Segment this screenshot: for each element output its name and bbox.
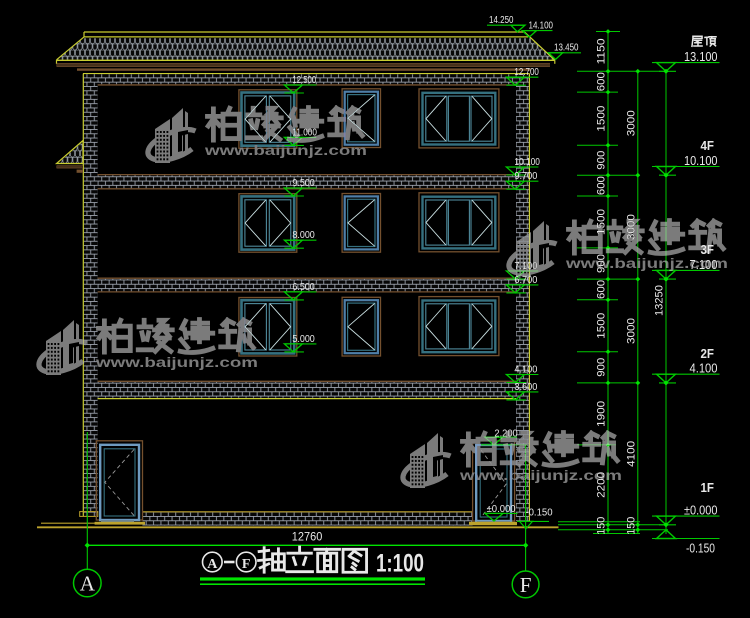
svg-text:9.700: 9.700 bbox=[514, 171, 537, 182]
svg-text:5.000: 5.000 bbox=[292, 334, 315, 345]
svg-text:150: 150 bbox=[596, 517, 608, 535]
svg-text:±0.000: ±0.000 bbox=[684, 503, 718, 518]
svg-text:600: 600 bbox=[596, 280, 608, 299]
svg-text:A: A bbox=[80, 572, 96, 596]
svg-text:10.100: 10.100 bbox=[514, 157, 540, 168]
svg-text:13.100: 13.100 bbox=[684, 49, 718, 64]
svg-text:10.100: 10.100 bbox=[684, 153, 718, 168]
svg-text:1500: 1500 bbox=[596, 313, 608, 339]
svg-text:8.000: 8.000 bbox=[292, 230, 315, 241]
svg-text:-0.150: -0.150 bbox=[686, 542, 715, 556]
svg-text:www.baijunjz.com: www.baijunjz.com bbox=[204, 143, 367, 158]
svg-text:www.baijunjz.com: www.baijunjz.com bbox=[565, 256, 728, 271]
svg-text:1500: 1500 bbox=[596, 106, 608, 132]
svg-text:F: F bbox=[520, 573, 532, 597]
svg-text:www.baijunjz.com: www.baijunjz.com bbox=[459, 468, 622, 483]
svg-text:600: 600 bbox=[596, 176, 608, 195]
svg-text:4.100: 4.100 bbox=[690, 361, 718, 376]
svg-text:2F: 2F bbox=[701, 347, 715, 361]
svg-text:6.500: 6.500 bbox=[292, 282, 315, 293]
svg-text:12.500: 12.500 bbox=[292, 75, 316, 86]
svg-text:900: 900 bbox=[596, 358, 608, 377]
svg-text:14.100: 14.100 bbox=[529, 20, 554, 31]
svg-text:3000: 3000 bbox=[625, 110, 637, 136]
svg-text:1900: 1900 bbox=[596, 401, 608, 427]
svg-text:14.250: 14.250 bbox=[489, 15, 514, 26]
svg-text:12760: 12760 bbox=[292, 531, 323, 543]
svg-text:13250: 13250 bbox=[654, 285, 666, 316]
svg-text:9.500: 9.500 bbox=[292, 178, 315, 189]
svg-text:13.450: 13.450 bbox=[554, 43, 579, 54]
svg-text:4F: 4F bbox=[701, 139, 715, 153]
svg-text:±0.000: ±0.000 bbox=[487, 504, 516, 515]
svg-text:F: F bbox=[242, 557, 251, 572]
svg-text:600: 600 bbox=[596, 72, 608, 91]
svg-text:A: A bbox=[207, 557, 218, 572]
svg-text:12.700: 12.700 bbox=[514, 67, 539, 78]
svg-text:900: 900 bbox=[596, 151, 608, 170]
svg-text:150: 150 bbox=[625, 517, 637, 535]
svg-text:4100: 4100 bbox=[625, 441, 637, 467]
svg-text:4.100: 4.100 bbox=[514, 365, 537, 376]
svg-text:1F: 1F bbox=[701, 481, 715, 495]
svg-text:1:100: 1:100 bbox=[376, 550, 424, 578]
svg-text:-0.150: -0.150 bbox=[525, 508, 553, 519]
svg-text:6.700: 6.700 bbox=[514, 275, 537, 286]
svg-text:3000: 3000 bbox=[625, 318, 637, 344]
svg-text:1150: 1150 bbox=[596, 38, 608, 64]
svg-text:3.600: 3.600 bbox=[514, 382, 537, 393]
svg-text:www.baijunjz.com: www.baijunjz.com bbox=[95, 355, 258, 370]
